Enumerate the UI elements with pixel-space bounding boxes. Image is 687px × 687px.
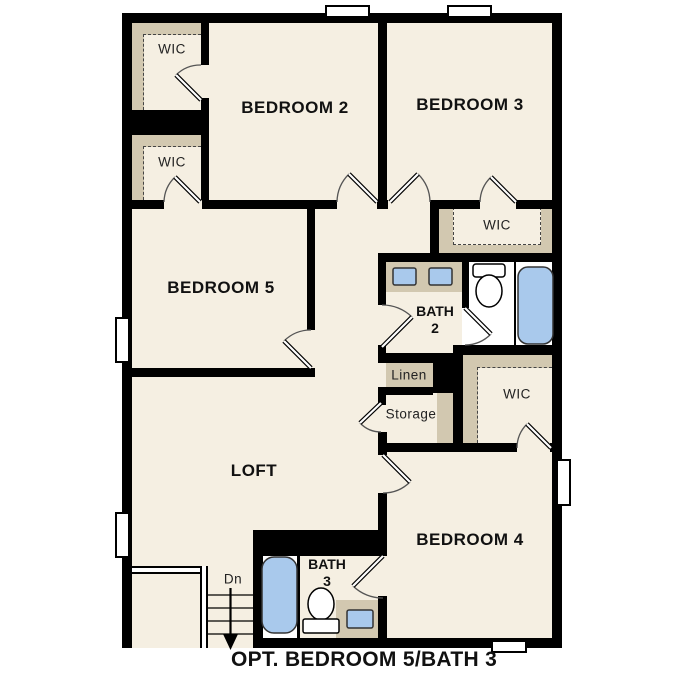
wall-segment (378, 253, 562, 262)
room-label-bath-3: BATH 3 (308, 556, 346, 590)
window (115, 317, 130, 363)
window (447, 5, 492, 18)
window (115, 512, 130, 558)
stairs-down-label: Dn (224, 572, 242, 587)
bath-2-name: BATH (416, 303, 454, 320)
wall-segment (122, 110, 209, 135)
storage-label: Storage (386, 407, 437, 422)
bath-3-number: 3 (308, 573, 346, 590)
wall-segment (201, 135, 209, 200)
room-label-loft: LOFT (231, 461, 277, 481)
bath-2-number: 2 (416, 320, 454, 337)
wic-bedroom3-band-right (541, 209, 552, 245)
bath3-vanity-counter (336, 600, 383, 638)
room-label-bath-2: BATH 2 (416, 303, 454, 337)
wic-bedroom4-dashes (477, 367, 552, 443)
wall-segment (453, 345, 562, 355)
bath2-tub-divider (514, 262, 516, 345)
floor-plan: WIC WIC BEDROOM 2 BEDROOM 3 BEDROOM 5 WI… (0, 0, 687, 687)
bath2-compartment-floor (462, 262, 552, 345)
wall-segment (307, 200, 315, 330)
room-label-bedroom-3: BEDROOM 3 (416, 95, 523, 115)
wall-segment (201, 23, 209, 65)
wic-label: WIC (483, 218, 511, 233)
floor-plan-page: { "plan": { "caption": "OPT. BEDROOM 5/B… (0, 0, 687, 687)
wall-segment (516, 200, 562, 209)
wall-segment (377, 200, 388, 209)
wall-segment (453, 355, 463, 450)
stair-railing (200, 566, 208, 648)
linen-label: Linen (391, 368, 427, 383)
stair-railing (132, 566, 208, 574)
wic-bedroom4-band-left (463, 355, 478, 443)
plan-caption: OPT. BEDROOM 5/BATH 3 (231, 648, 497, 672)
bath-3-name: BATH (308, 556, 346, 573)
wic-label: WIC (158, 155, 186, 170)
room-label-bedroom-5: BEDROOM 5 (167, 278, 274, 298)
storage-shelf-band (437, 393, 453, 443)
wall-segment (378, 387, 433, 395)
wall-segment (550, 443, 562, 452)
wic-label: WIC (158, 42, 186, 57)
wall-segment (253, 530, 263, 648)
room-label-bedroom-4: BEDROOM 4 (416, 530, 523, 550)
wall-segment (202, 200, 337, 209)
room-label-bedroom-2: BEDROOM 2 (241, 98, 348, 118)
wic-label: WIC (503, 387, 531, 402)
wall-segment (122, 368, 315, 377)
wall-segment (201, 98, 209, 110)
wall-segment (378, 596, 387, 648)
bath2-vanity-counter (386, 262, 462, 292)
wall-segment (552, 13, 562, 648)
wall-segment (462, 262, 469, 308)
window (325, 5, 370, 18)
bath3-tub-divider (297, 556, 300, 638)
wall-segment (253, 530, 387, 556)
window (556, 459, 571, 506)
wall-segment (378, 23, 387, 205)
bath3-tub-alcove-floor (263, 556, 299, 638)
wall-segment (378, 395, 386, 405)
wall-segment (378, 443, 517, 452)
wall-segment (122, 200, 164, 209)
wall-segment (378, 262, 386, 305)
wic-bedroom3-band-left (439, 209, 453, 245)
